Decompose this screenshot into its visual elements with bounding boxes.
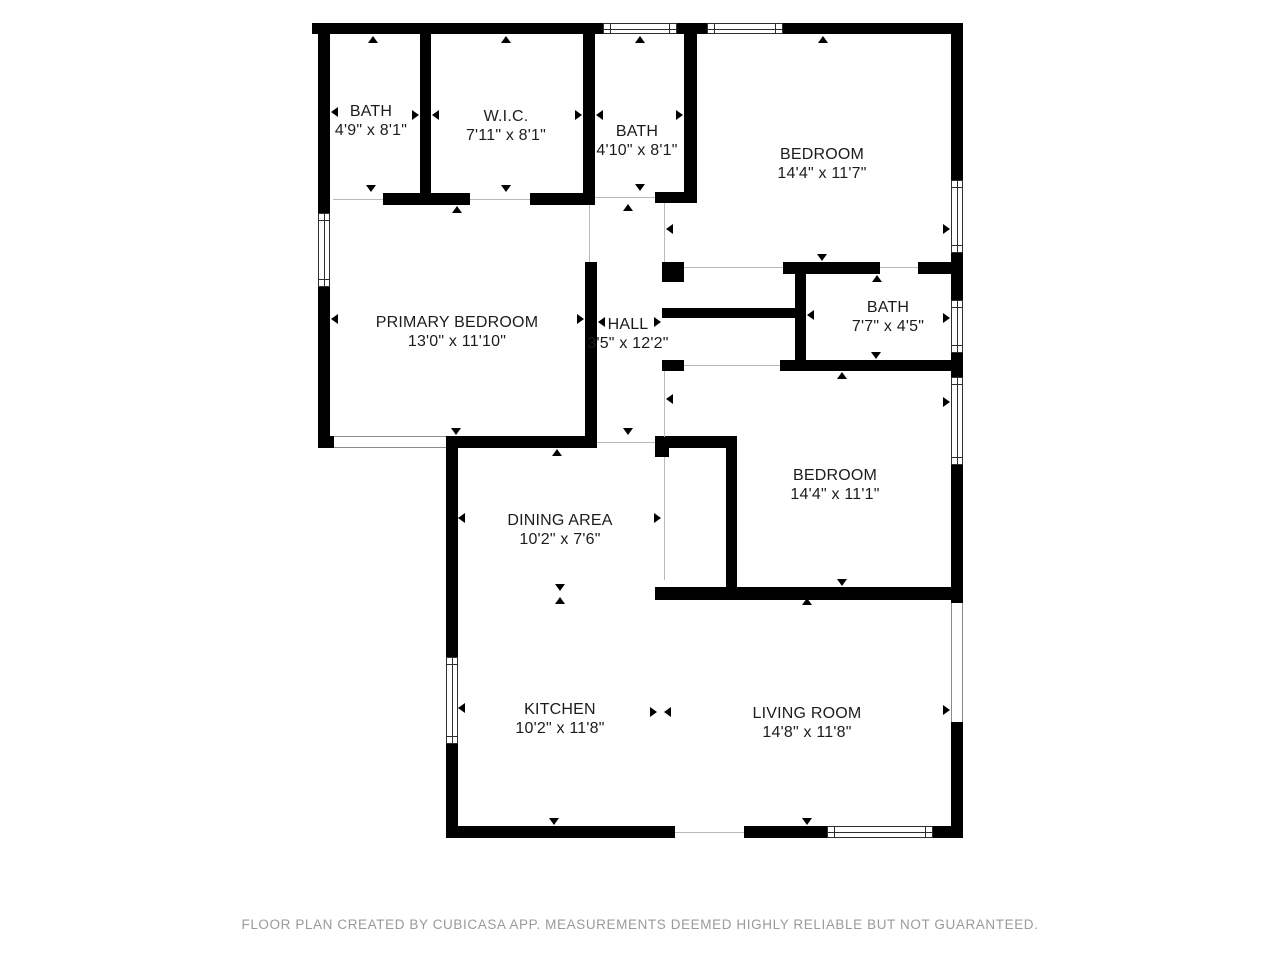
measure-arrow-left-icon (666, 394, 673, 404)
wall (951, 722, 963, 838)
room-name: DINING AREA (440, 511, 680, 530)
room-dims: 14'4" x 11'7" (702, 164, 942, 183)
wall (951, 253, 963, 300)
room-label: BEDROOM14'4" x 11'1" (715, 466, 955, 504)
room-label: BATH7'7" x 4'5" (768, 298, 1008, 336)
window (827, 826, 933, 838)
measure-arrow-down-icon (366, 185, 376, 192)
measure-arrow-up-icon (872, 275, 882, 282)
room-name: BATH (517, 122, 757, 141)
wall (918, 262, 963, 274)
measure-arrow-down-icon (549, 818, 559, 825)
window (951, 180, 963, 253)
measure-arrow-down-icon (451, 428, 461, 435)
wall (530, 193, 595, 205)
room-dims: 14'4" x 11'1" (715, 485, 955, 504)
boundary-line (684, 365, 780, 366)
room-dims: 3'5" x 12'2" (508, 334, 748, 353)
boundary-line (664, 371, 665, 437)
measure-arrow-down-icon (817, 254, 827, 261)
wall (585, 262, 597, 448)
measure-arrow-down-icon (837, 579, 847, 586)
boundary-line (595, 197, 655, 198)
measure-arrow-down-icon (635, 184, 645, 191)
measure-arrow-down-icon (623, 428, 633, 435)
boundary-line (684, 267, 783, 268)
measure-arrow-up-icon (635, 36, 645, 43)
boundary-line (675, 832, 744, 833)
measure-arrow-up-icon (452, 206, 462, 213)
footer-disclaimer: FLOOR PLAN CREATED BY CUBICASA APP. MEAS… (0, 917, 1280, 932)
room-dims: 10'2" x 7'6" (440, 530, 680, 549)
measure-arrow-down-icon (802, 818, 812, 825)
room-name: BATH (768, 298, 1008, 317)
room-dims: 7'7" x 4'5" (768, 317, 1008, 336)
wall (655, 436, 669, 457)
measure-arrow-up-icon (802, 598, 812, 605)
boundary-line (597, 442, 655, 443)
boundary-line (880, 267, 918, 268)
room-name: LIVING ROOM (687, 704, 927, 723)
sliding-opening (334, 436, 446, 448)
wall (318, 436, 334, 448)
wall (684, 23, 697, 203)
room-name: KITCHEN (440, 700, 680, 719)
room-name: BEDROOM (715, 466, 955, 485)
room-name: HALL (508, 315, 748, 334)
floor-plan-page: BATH4'9" x 8'1"W.I.C.7'11" x 8'1"BATH4'1… (0, 0, 1280, 960)
measure-arrow-down-icon (871, 352, 881, 359)
wall (951, 23, 963, 180)
window (603, 23, 677, 34)
measure-arrow-up-icon (623, 204, 633, 211)
window (707, 23, 783, 34)
measure-arrow-left-icon (666, 224, 673, 234)
wall (446, 744, 458, 838)
measure-arrow-up-icon (501, 36, 511, 43)
measure-arrow-down-icon (555, 584, 565, 591)
measure-arrow-up-icon (552, 449, 562, 456)
room-label: LIVING ROOM14'8" x 11'8" (687, 704, 927, 742)
boundary-line (470, 199, 530, 200)
measure-arrow-right-icon (943, 224, 950, 234)
room-label: KITCHEN10'2" x 11'8" (440, 700, 680, 738)
wall (662, 262, 684, 282)
room-label: DINING AREA10'2" x 7'6" (440, 511, 680, 549)
wall (744, 826, 827, 838)
room-name: BEDROOM (702, 145, 942, 164)
measure-arrow-right-icon (943, 397, 950, 407)
measure-arrow-down-icon (501, 185, 511, 192)
wall (783, 262, 880, 274)
room-dims: 10'2" x 11'8" (440, 719, 680, 738)
wall (655, 192, 697, 203)
wall (318, 287, 330, 448)
measure-arrow-up-icon (555, 597, 565, 604)
window (951, 377, 963, 465)
wall (662, 360, 684, 371)
floor-plan: BATH4'9" x 8'1"W.I.C.7'11" x 8'1"BATH4'1… (0, 0, 1280, 960)
measure-arrow-up-icon (837, 372, 847, 379)
wall (383, 193, 470, 205)
wall (446, 826, 675, 838)
wall (446, 436, 597, 448)
measure-arrow-up-icon (818, 36, 828, 43)
boundary-line (333, 199, 383, 200)
sliding-opening (951, 603, 963, 722)
boundary-line (664, 203, 665, 262)
measure-arrow-right-icon (943, 705, 950, 715)
window (318, 213, 330, 287)
room-label: BEDROOM14'4" x 11'7" (702, 145, 942, 183)
measure-arrow-up-icon (368, 36, 378, 43)
boundary-line (589, 205, 590, 262)
room-label: HALL3'5" x 12'2" (508, 315, 748, 353)
room-dims: 14'8" x 11'8" (687, 723, 927, 742)
measure-arrow-right-icon (676, 110, 683, 120)
wall (780, 360, 963, 371)
